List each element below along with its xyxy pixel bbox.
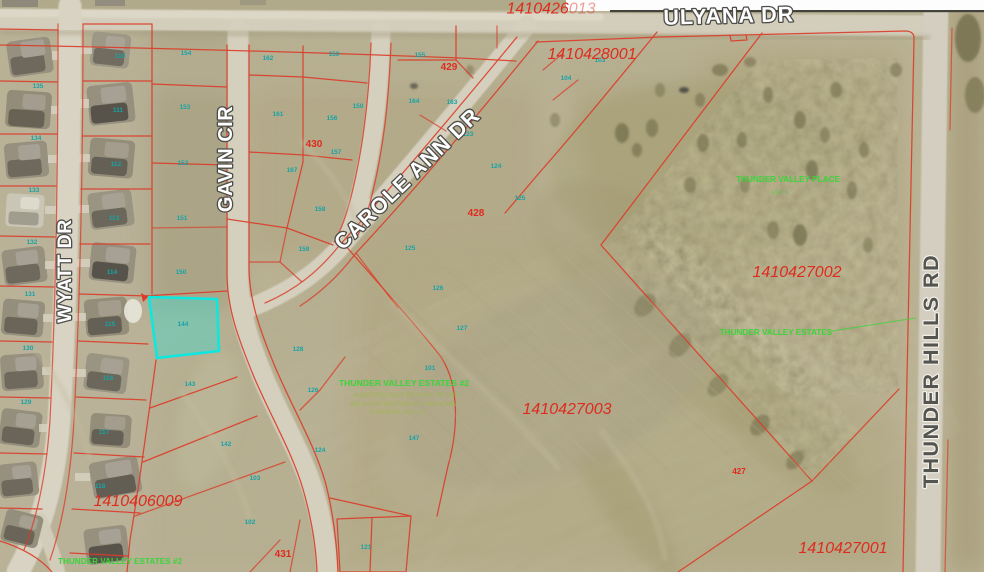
svg-text:161: 161: [273, 111, 284, 118]
svg-text:163: 163: [447, 99, 458, 106]
svg-text:1410427002: 1410427002: [753, 264, 842, 281]
svg-text:162: 162: [263, 55, 274, 62]
svg-text:THUNDER VALLEY ESTATES #2: THUNDER VALLEY ESTATES #2: [58, 557, 182, 566]
svg-text:1410426013: 1410426013: [507, 1, 596, 18]
svg-text:132: 132: [27, 239, 38, 246]
svg-text:GAVIN CIR: GAVIN CIR: [215, 106, 237, 212]
svg-text:116: 116: [103, 375, 114, 382]
svg-text:128: 128: [293, 346, 304, 353]
svg-text:143: 143: [185, 381, 196, 388]
svg-text:157: 157: [331, 149, 342, 156]
svg-text:429: 429: [441, 62, 458, 73]
svg-text:127: 127: [457, 325, 468, 332]
svg-text:ULYANA DR: ULYANA DR: [663, 2, 794, 29]
svg-text:1410427001: 1410427001: [799, 540, 888, 557]
svg-text:167: 167: [287, 167, 298, 174]
svg-text:154: 154: [181, 50, 192, 57]
svg-text:THUNDER HILLS RD: THUNDER HILLS RD: [919, 254, 943, 488]
svg-text:110: 110: [115, 53, 126, 60]
svg-text:430: 430: [306, 139, 323, 150]
svg-text:111: 111: [113, 107, 124, 114]
svg-text:428: 428: [468, 208, 485, 219]
svg-text:1410406009: 1410406009: [94, 493, 183, 510]
svg-text:142: 142: [221, 441, 232, 448]
svg-text:1410428001: 1410428001: [548, 46, 637, 63]
svg-text:135: 135: [33, 83, 44, 90]
svg-text:150: 150: [353, 103, 364, 110]
svg-text:152: 152: [178, 160, 189, 167]
svg-text:164: 164: [409, 98, 420, 105]
svg-text:134: 134: [31, 135, 42, 142]
svg-text:114: 114: [107, 269, 118, 276]
svg-text:131: 131: [25, 291, 36, 298]
svg-text:1410427003: 1410427003: [523, 401, 612, 418]
svg-text:427: 427: [732, 467, 746, 476]
svg-text:147: 147: [409, 435, 420, 442]
svg-text:101: 101: [425, 365, 436, 372]
svg-text:126: 126: [433, 285, 444, 292]
svg-text:125: 125: [515, 195, 526, 202]
svg-text:125: 125: [405, 245, 416, 252]
svg-text:117: 117: [99, 429, 110, 436]
svg-text:133: 133: [29, 187, 40, 194]
svg-text:156: 156: [327, 115, 338, 122]
svg-text:THUNDER VALLEY PLACE: THUNDER VALLEY PLACE: [736, 175, 840, 184]
svg-text:WYATT DR: WYATT DR: [54, 219, 76, 323]
svg-text:158: 158: [315, 206, 326, 213]
svg-text:118: 118: [95, 483, 106, 490]
svg-text:151: 151: [177, 215, 188, 222]
svg-text:113: 113: [109, 215, 120, 222]
svg-text:THUNDER VALLEY ESTATES: THUNDER VALLEY ESTATES: [720, 328, 833, 337]
svg-text:155: 155: [415, 52, 426, 59]
svg-text:THUNDER VALLEY ESTATES #2: THUNDER VALLEY ESTATES #2: [339, 378, 469, 388]
svg-text:115: 115: [105, 321, 116, 328]
svg-text:112: 112: [111, 161, 122, 168]
svg-text:150: 150: [329, 51, 340, 58]
svg-text:124: 124: [315, 447, 326, 454]
svg-text:LOT 1: LOT 1: [771, 190, 789, 196]
svg-text:144: 144: [178, 321, 189, 328]
svg-text:AUDITORS PLAT OF PART OF THE: AUDITORS PLAT OF PART OF THE: [353, 392, 460, 399]
svg-text:124: 124: [491, 163, 502, 170]
svg-text:129: 129: [21, 399, 32, 406]
svg-text:159: 159: [299, 246, 310, 253]
svg-text:431: 431: [275, 549, 292, 560]
svg-text:153: 153: [180, 104, 191, 111]
svg-text:130: 130: [23, 345, 34, 352]
svg-text:THUNDER VALLEY: THUNDER VALLEY: [369, 409, 427, 416]
svg-text:103: 103: [250, 475, 261, 482]
svg-text:102: 102: [245, 519, 256, 526]
svg-text:104: 104: [561, 75, 572, 82]
svg-text:150: 150: [176, 269, 187, 276]
svg-text:NE 1/4 OF SECTION 14 T89N R46W: NE 1/4 OF SECTION 14 T89N R46W: [351, 401, 458, 408]
svg-text:126: 126: [308, 387, 319, 394]
svg-text:121: 121: [361, 544, 372, 551]
